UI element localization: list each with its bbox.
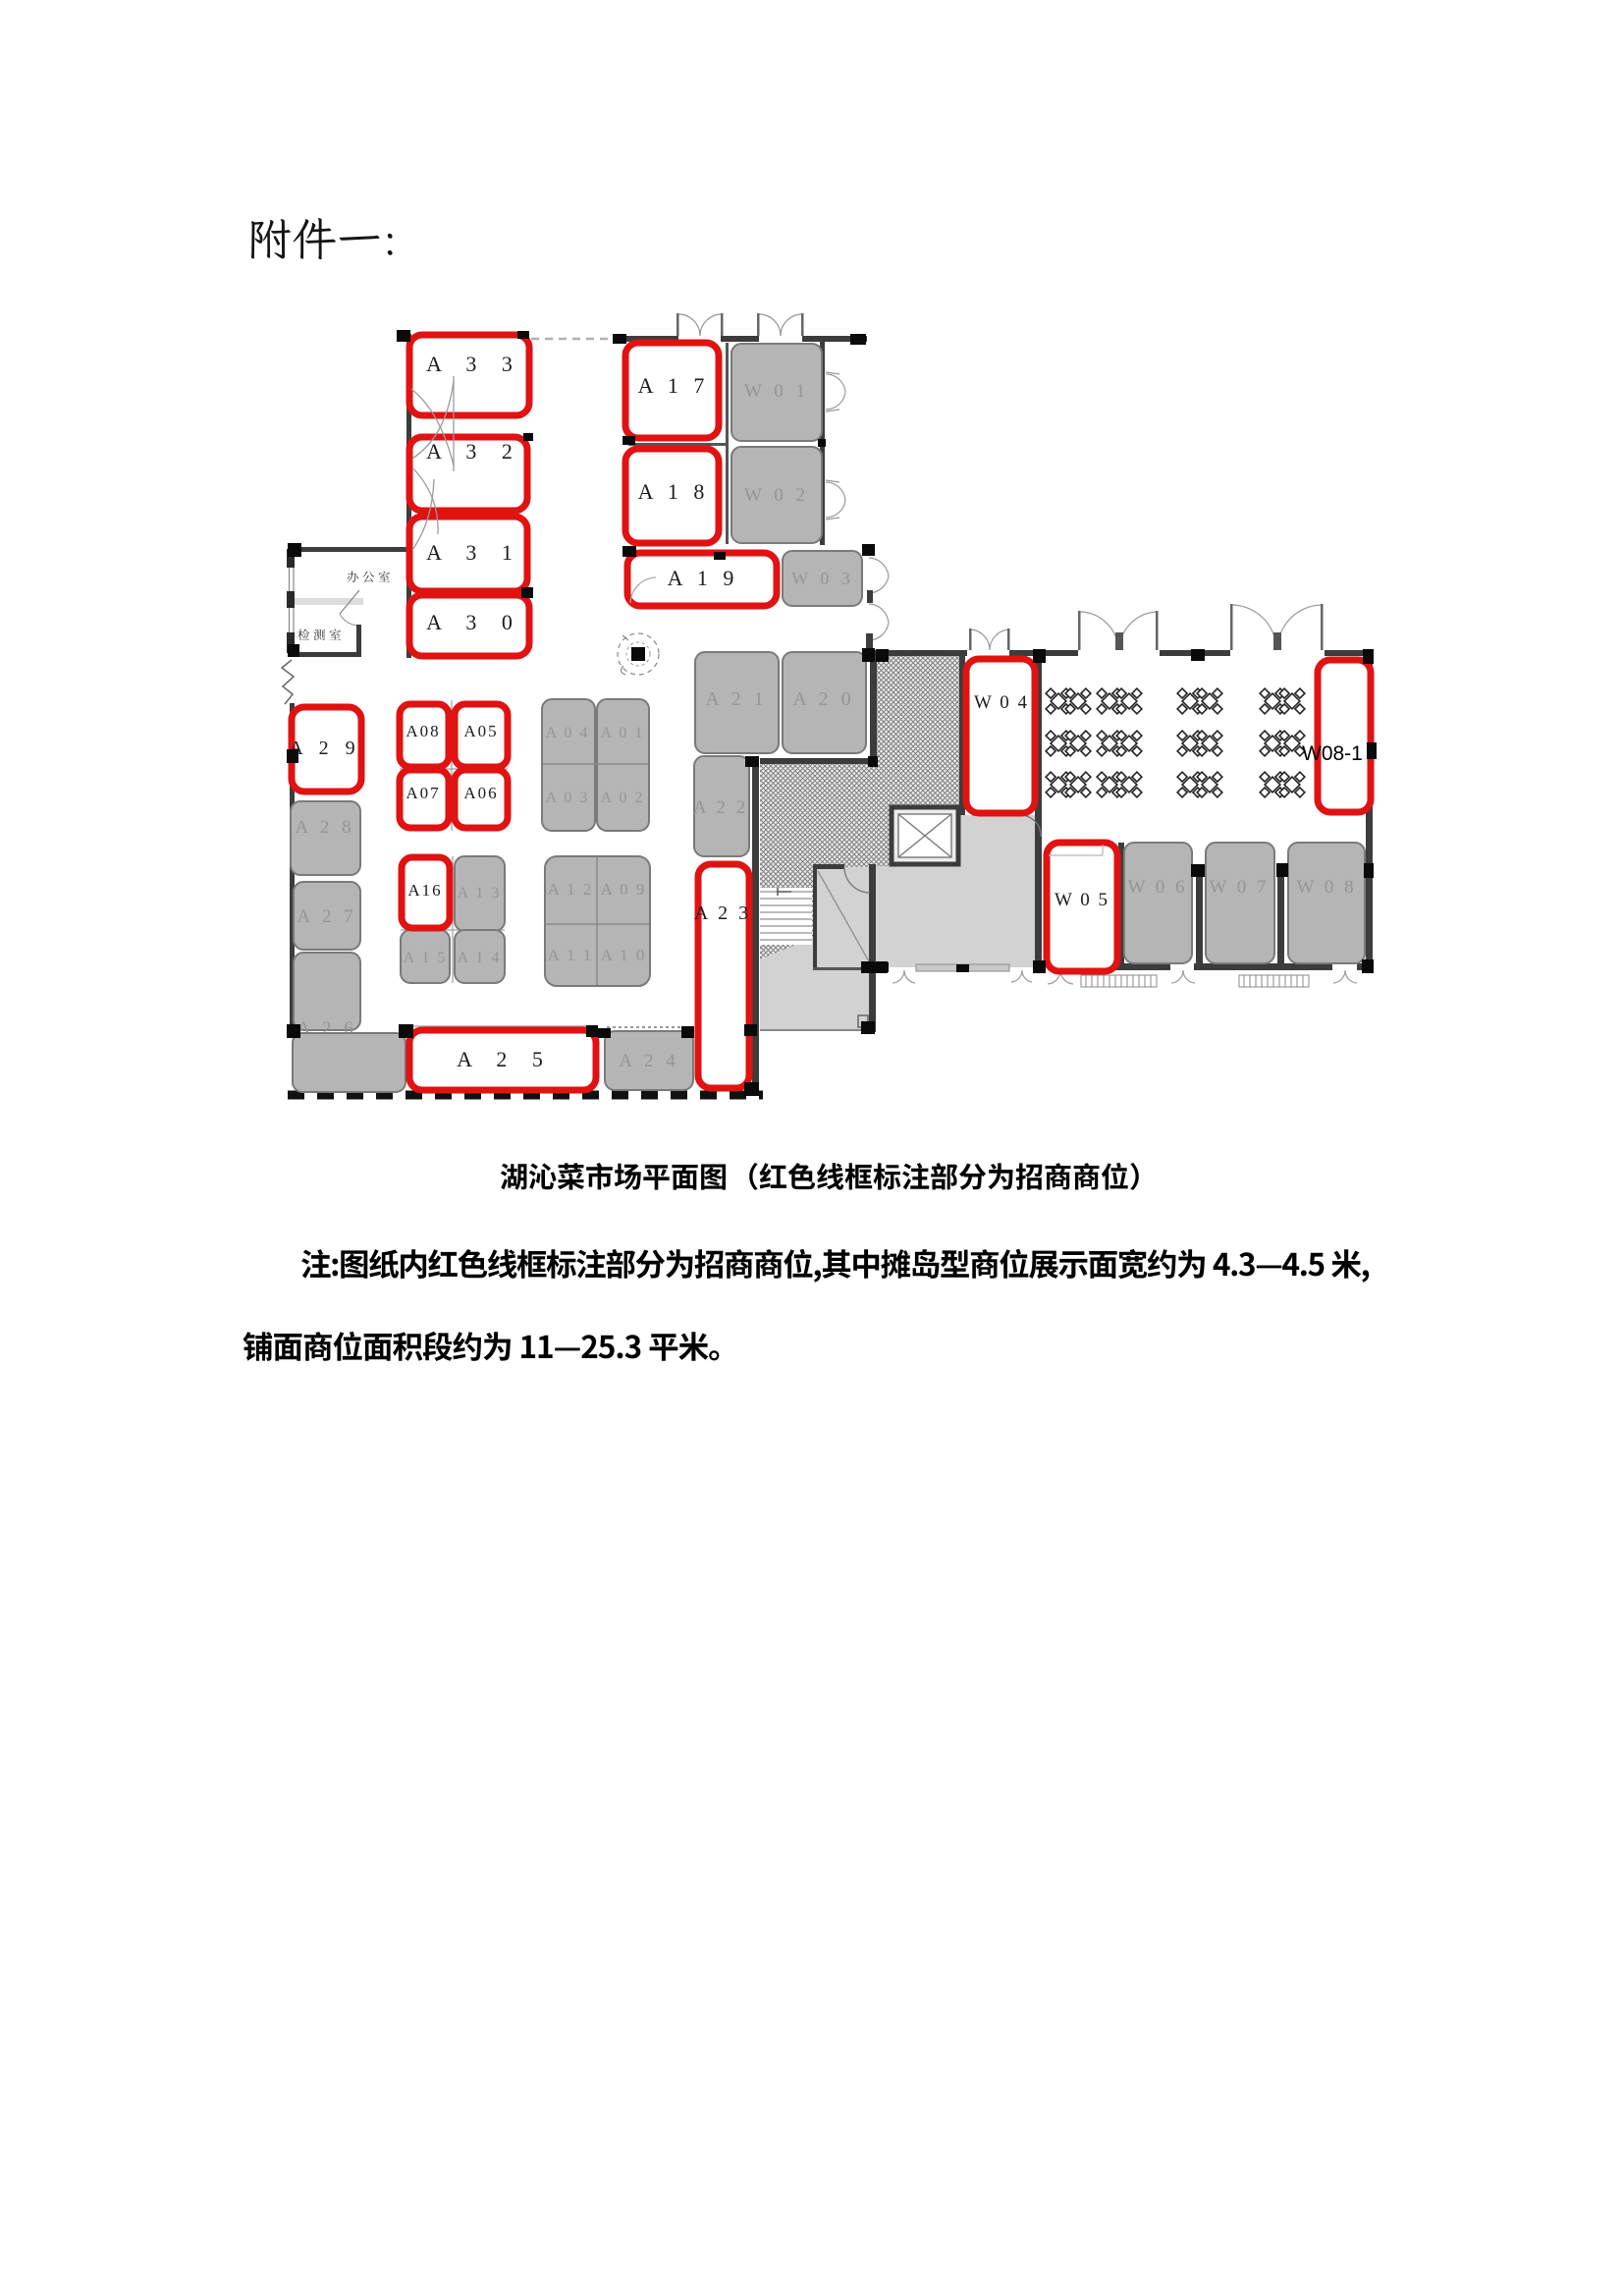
svg-text:A 3 1: A 3 1 <box>426 540 522 565</box>
svg-text:A 1 5: A 1 5 <box>404 950 448 966</box>
svg-text:A 2 9: A 2 9 <box>289 738 360 759</box>
svg-text:A 1 3: A 1 3 <box>458 885 502 902</box>
svg-text:W 0 4: W 0 4 <box>974 692 1029 713</box>
svg-text:A 2 0: A 2 0 <box>792 688 854 710</box>
svg-text:A 1 1: A 1 1 <box>548 946 594 964</box>
svg-text:A 2 1: A 2 1 <box>705 688 767 710</box>
svg-text:A 2 3: A 2 3 <box>694 902 751 924</box>
svg-text:A 2 8: A 2 8 <box>295 817 354 838</box>
svg-text:A 0 1: A 0 1 <box>601 725 645 741</box>
svg-text:A 1 9: A 1 9 <box>668 566 739 590</box>
svg-text:A 3 2: A 3 2 <box>426 439 522 464</box>
svg-text:A 0 3: A 0 3 <box>546 790 590 806</box>
svg-text:A 1 7: A 1 7 <box>638 373 710 398</box>
svg-text:W 0 3: W 0 3 <box>791 569 854 588</box>
svg-text:A 3 3: A 3 3 <box>426 352 522 376</box>
svg-text:W 0 6: W 0 6 <box>1127 877 1187 898</box>
svg-text:W 0 1: W 0 1 <box>744 381 809 402</box>
svg-text:A 1 4: A 1 4 <box>458 950 502 966</box>
svg-text:W08-1: W08-1 <box>1302 742 1363 765</box>
svg-text:A05: A05 <box>463 722 498 740</box>
svg-text:A 3 0: A 3 0 <box>426 610 522 634</box>
svg-text:A08: A08 <box>406 722 440 740</box>
svg-text:A 1 8: A 1 8 <box>638 479 710 504</box>
svg-text:A 0 4: A 0 4 <box>546 725 590 741</box>
svg-text:A 2 5: A 2 5 <box>457 1047 553 1071</box>
svg-text:W 0 8: W 0 8 <box>1296 877 1356 898</box>
svg-text:A 0 9: A 0 9 <box>601 880 647 899</box>
svg-text:A 2 7: A 2 7 <box>297 906 356 927</box>
svg-text:W 0 7: W 0 7 <box>1209 877 1269 898</box>
svg-text:A 2 2: A 2 2 <box>693 797 748 818</box>
svg-text:A 1 0: A 1 0 <box>601 946 647 964</box>
svg-text:A06: A06 <box>463 784 498 802</box>
svg-text:A 0 2: A 0 2 <box>601 790 645 806</box>
svg-text:A 2 4: A 2 4 <box>619 1051 678 1071</box>
svg-text:W 0 2: W 0 2 <box>744 485 809 506</box>
svg-text:W 0 5: W 0 5 <box>1055 890 1109 910</box>
svg-text:A 1 2: A 1 2 <box>548 880 594 899</box>
svg-text:A07: A07 <box>406 784 440 802</box>
svg-text:A16: A16 <box>407 881 442 900</box>
